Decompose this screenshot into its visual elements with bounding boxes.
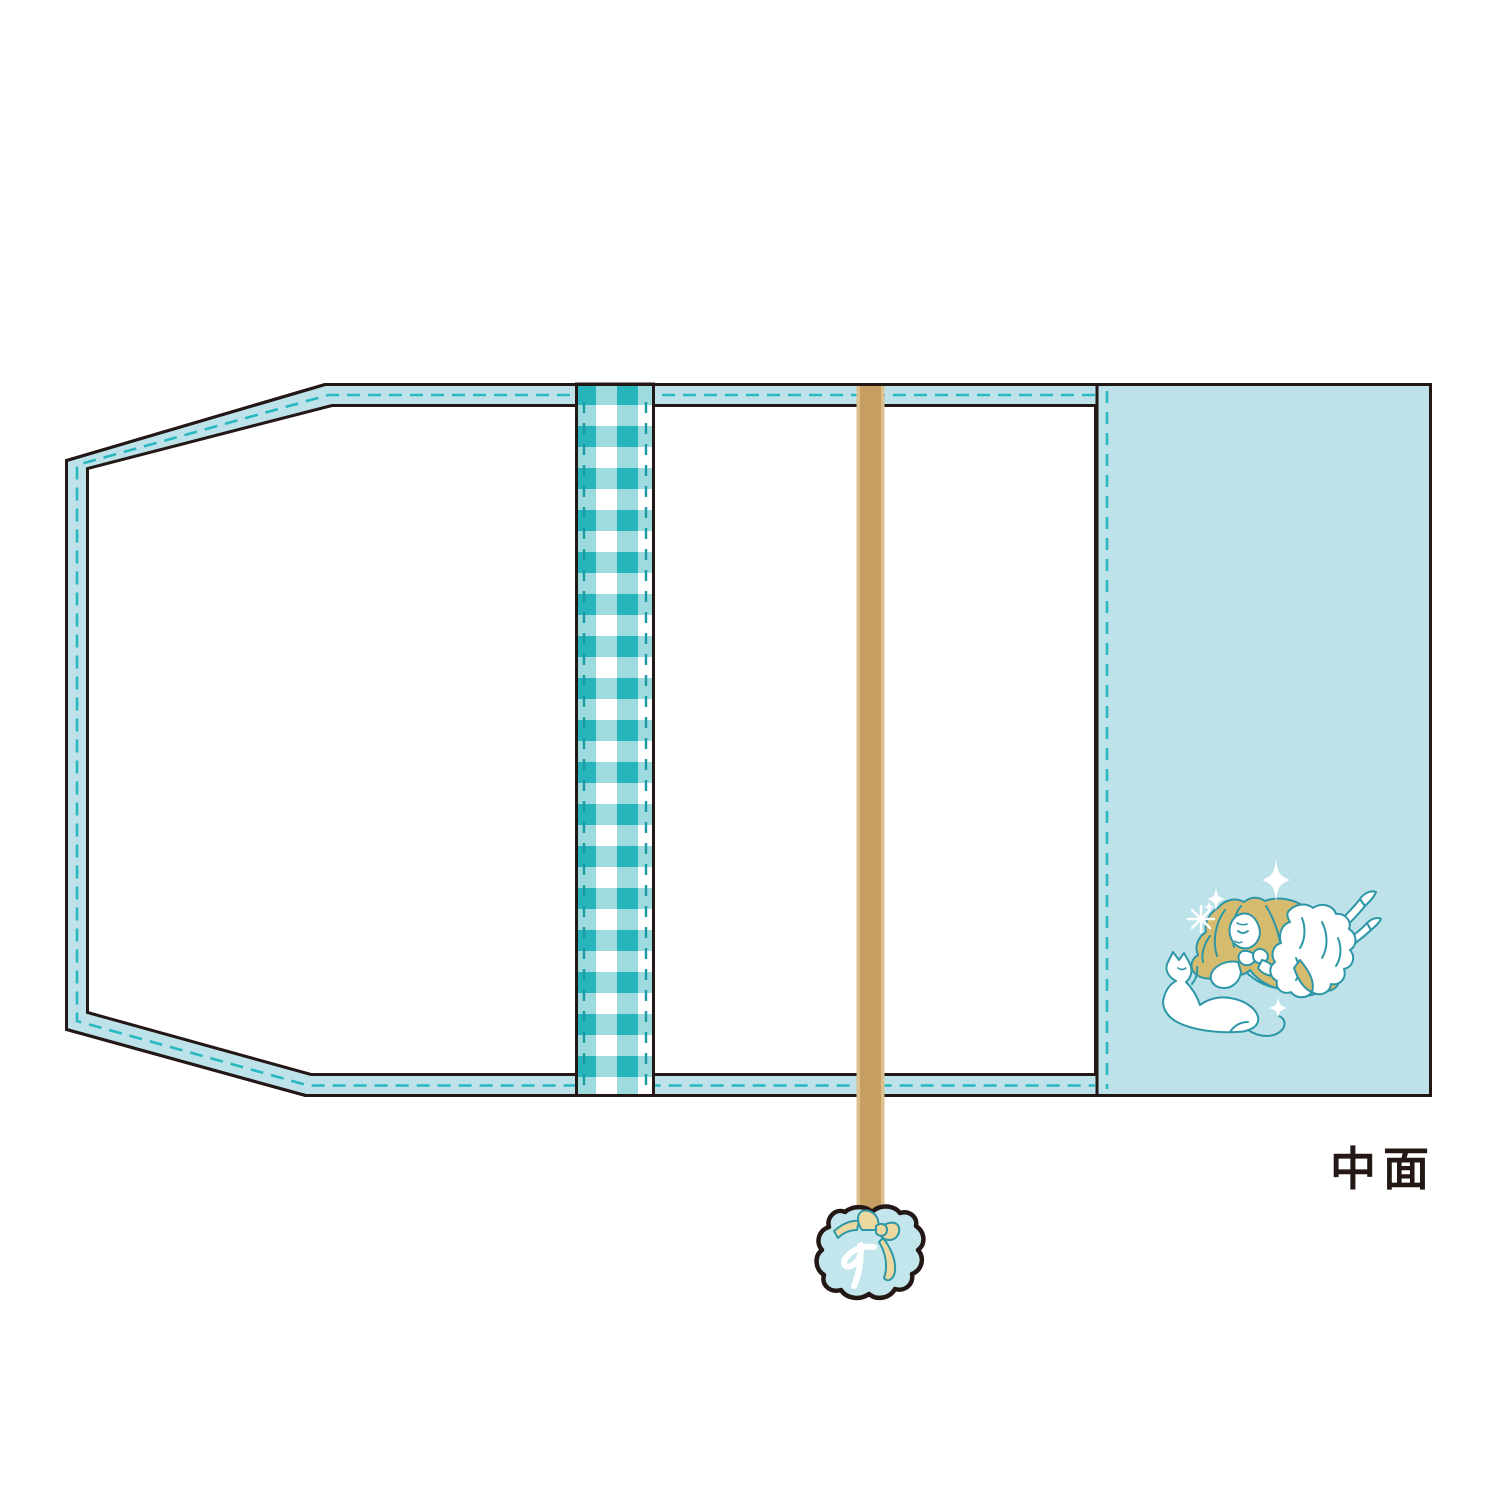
sparkle-icon bbox=[1188, 906, 1214, 932]
gingham-ribbon-strip bbox=[577, 384, 654, 1096]
cover-design-svg bbox=[0, 0, 1500, 1500]
cover-design-canvas: 中面 bbox=[0, 0, 1500, 1500]
inside-cover-panel bbox=[1097, 385, 1431, 1096]
girl-face bbox=[1230, 914, 1260, 949]
inside-face-label: 中面 bbox=[1330, 1133, 1440, 1199]
bookmark-ribbon bbox=[855, 383, 886, 1215]
ribbon-charm-icon bbox=[817, 1206, 924, 1297]
